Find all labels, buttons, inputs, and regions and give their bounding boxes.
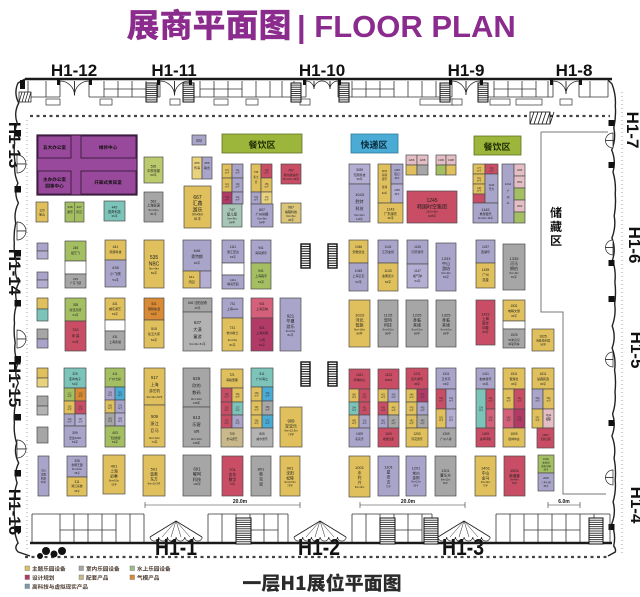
svg-text:36平: 36平 xyxy=(224,422,229,425)
svg-text:36平: 36平 xyxy=(543,485,549,488)
svg-text:36平: 36平 xyxy=(540,343,546,347)
svg-text:36平: 36平 xyxy=(477,190,482,193)
svg-text:宝山: 宝山 xyxy=(39,212,45,217)
svg-text:36平: 36平 xyxy=(108,407,113,410)
svg-text:517: 517 xyxy=(151,375,159,380)
svg-text:54平: 54平 xyxy=(112,278,118,282)
svg-text:509: 509 xyxy=(151,414,159,419)
svg-text:大漠: 大漠 xyxy=(193,326,202,333)
svg-text:36平: 36平 xyxy=(67,395,72,398)
svg-text:36平: 36平 xyxy=(265,409,270,412)
svg-text:常州: 常州 xyxy=(412,470,420,475)
svg-text:汇鑫: 汇鑫 xyxy=(192,200,202,207)
svg-text:811: 811 xyxy=(259,372,264,376)
svg-text:1439: 1439 xyxy=(482,268,490,272)
svg-text:1511: 1511 xyxy=(511,372,518,376)
svg-text:54平: 54平 xyxy=(229,221,235,225)
svg-text:36平: 36平 xyxy=(409,396,414,399)
svg-text:1208: 1208 xyxy=(420,158,426,162)
svg-text:81平: 81平 xyxy=(194,217,202,221)
svg-text:金马: 金马 xyxy=(482,475,490,480)
svg-text:805: 805 xyxy=(259,432,265,436)
svg-text:108平: 108平 xyxy=(193,441,201,445)
svg-text:M&W: M&W xyxy=(385,378,393,382)
svg-text:54平: 54平 xyxy=(415,279,421,283)
svg-text:么: 么 xyxy=(507,201,510,205)
svg-text:36平: 36平 xyxy=(443,382,449,386)
svg-text:上海velo: 上海velo xyxy=(227,306,239,311)
svg-text:柏林游乐: 柏林游乐 xyxy=(479,376,491,381)
svg-text:1109: 1109 xyxy=(385,432,392,436)
svg-text:上海互映: 上海互映 xyxy=(256,306,268,311)
svg-text:81平: 81平 xyxy=(194,261,200,265)
svg-text:9m×10m: 9m×10m xyxy=(72,467,82,471)
svg-text:73平: 73平 xyxy=(288,433,294,437)
svg-text:9m×12m: 9m×12m xyxy=(441,478,450,481)
svg-text:州: 州 xyxy=(507,195,510,199)
svg-text:32平: 32平 xyxy=(382,191,388,195)
svg-text:54平: 54平 xyxy=(385,280,391,284)
svg-text:1111: 1111 xyxy=(230,245,237,249)
svg-text:1611: 1611 xyxy=(540,372,547,376)
svg-text:乐园: 乐园 xyxy=(188,279,194,284)
svg-text:431: 431 xyxy=(112,335,118,339)
svg-text:36平: 36平 xyxy=(511,314,517,318)
svg-text:VR: VR xyxy=(194,429,200,434)
svg-text:广州海之: 广州海之 xyxy=(256,376,268,381)
svg-text:吉: 吉 xyxy=(387,480,391,485)
svg-text:小飞侠: 小飞侠 xyxy=(110,271,121,276)
svg-text:807: 807 xyxy=(259,208,265,212)
svg-text:941: 941 xyxy=(258,269,264,273)
svg-text:身临: 身临 xyxy=(442,317,450,323)
svg-text:445: 445 xyxy=(112,205,118,209)
svg-text:54平: 54平 xyxy=(258,280,264,284)
svg-text:36平: 36平 xyxy=(235,396,240,399)
svg-text:广州七彩: 广州七彩 xyxy=(109,376,121,381)
svg-text:36平: 36平 xyxy=(74,489,80,493)
svg-text:公司: 公司 xyxy=(259,337,265,342)
svg-text:长春日报: 长春日报 xyxy=(540,437,551,441)
svg-text:游乐: 游乐 xyxy=(67,209,73,214)
svg-text:1309: 1309 xyxy=(442,432,449,436)
svg-text:H1-8: H1-8 xyxy=(556,61,593,80)
svg-text:921: 921 xyxy=(259,326,265,330)
svg-text:36平: 36平 xyxy=(224,409,229,412)
svg-text:36平: 36平 xyxy=(479,409,484,412)
svg-text:上海森宇: 上海森宇 xyxy=(255,273,267,278)
svg-text:水: 水 xyxy=(358,470,362,475)
svg-text:米·高: 米·高 xyxy=(72,333,81,338)
svg-text:亚青电子: 亚青电子 xyxy=(69,376,81,381)
svg-text:45平: 45平 xyxy=(74,471,80,475)
svg-text:81平: 81平 xyxy=(259,343,265,347)
svg-text:9m×9m: 9m×9m xyxy=(510,478,518,481)
svg-text:假日: 假日 xyxy=(394,172,400,176)
svg-text:海润: 海润 xyxy=(382,173,388,177)
svg-text:组艺飞: 组艺飞 xyxy=(71,250,80,255)
svg-text:1401: 1401 xyxy=(481,465,491,470)
svg-text:1101: 1101 xyxy=(384,465,393,470)
svg-text:721: 721 xyxy=(229,373,235,377)
svg-text:325: 325 xyxy=(72,372,78,376)
svg-text:36平: 36平 xyxy=(394,177,400,180)
svg-text:高基: 高基 xyxy=(196,138,202,143)
svg-text:901: 901 xyxy=(287,465,294,470)
svg-text:三年心动: 三年心动 xyxy=(541,480,551,484)
svg-text:646 沈阳创奇: 646 沈阳创奇 xyxy=(188,300,208,305)
svg-text:1009: 1009 xyxy=(356,432,363,436)
svg-text:731: 731 xyxy=(230,302,236,306)
svg-text:73平: 73平 xyxy=(287,484,293,488)
svg-text:54平: 54平 xyxy=(73,313,79,317)
svg-text:54平: 54平 xyxy=(151,312,157,316)
svg-text:36平: 36平 xyxy=(265,422,270,425)
svg-text:36平: 36平 xyxy=(477,180,482,183)
svg-text:星: 星 xyxy=(387,470,391,475)
svg-text:36平: 36平 xyxy=(391,396,396,399)
svg-text:1554: 1554 xyxy=(517,181,523,184)
svg-text:36平: 36平 xyxy=(439,400,444,403)
svg-text:36平: 36平 xyxy=(352,396,357,399)
svg-text:1046: 1046 xyxy=(355,245,362,249)
svg-text:65平: 65平 xyxy=(413,484,419,487)
svg-text:兴: 兴 xyxy=(358,480,362,485)
svg-text:科技: 科技 xyxy=(356,205,364,211)
svg-text:54平: 54平 xyxy=(259,221,265,225)
svg-text:431: 431 xyxy=(112,302,118,306)
svg-text:335: 335 xyxy=(73,303,79,307)
svg-text:思: 思 xyxy=(259,483,263,487)
svg-text:333: 333 xyxy=(73,328,79,332)
svg-text:100平: 100平 xyxy=(193,482,201,486)
svg-text:6m×6m 36平: 6m×6m 36平 xyxy=(283,177,299,181)
svg-text:摩迅天府: 摩迅天府 xyxy=(69,307,81,312)
svg-text:36平: 36平 xyxy=(108,420,113,423)
svg-text:奥特朗: 奥特朗 xyxy=(191,254,203,259)
svg-text:36平: 36平 xyxy=(225,186,230,189)
svg-text:54平: 54平 xyxy=(112,440,118,444)
svg-text:冬之: 冬之 xyxy=(253,175,259,179)
svg-text:1437: 1437 xyxy=(482,245,489,249)
svg-text:| FLOOR PLAN: | FLOOR PLAN xyxy=(297,9,516,44)
svg-text:36平: 36平 xyxy=(409,409,414,412)
svg-text:拖气球: 拖气球 xyxy=(413,273,422,278)
svg-text:515: 515 xyxy=(151,327,157,331)
svg-text:625: 625 xyxy=(193,376,201,381)
svg-text:1206: 1206 xyxy=(409,158,415,162)
svg-text:36平: 36平 xyxy=(506,400,511,403)
svg-text:1514: 1514 xyxy=(546,413,552,417)
svg-text:81平: 81平 xyxy=(288,333,294,337)
svg-text:86平: 86平 xyxy=(357,332,363,336)
svg-text:36平: 36平 xyxy=(288,218,294,222)
svg-text:浙江宏达: 浙江宏达 xyxy=(227,249,239,254)
svg-text:36平: 36平 xyxy=(394,193,400,196)
svg-text:108平: 108平 xyxy=(428,214,436,218)
svg-text:中山: 中山 xyxy=(442,260,450,266)
svg-text:36平: 36平 xyxy=(67,421,72,424)
svg-text:上海: 上海 xyxy=(482,316,489,321)
svg-text:H1-7: H1-7 xyxy=(623,112,640,149)
svg-text:36平: 36平 xyxy=(225,172,230,175)
svg-text:金果武沙: 金果武沙 xyxy=(382,273,394,278)
svg-text:传海: 传海 xyxy=(194,165,200,170)
svg-text:36平: 36平 xyxy=(546,400,551,403)
svg-text:36平: 36平 xyxy=(387,216,393,220)
svg-text:36平: 36平 xyxy=(381,422,386,425)
svg-text:613: 613 xyxy=(193,415,201,420)
svg-text:广: 广 xyxy=(507,189,510,193)
svg-text:1245: 1245 xyxy=(426,198,437,204)
svg-text:535: 535 xyxy=(150,255,159,261)
svg-text:1123: 1123 xyxy=(385,373,392,377)
svg-text:36平: 36平 xyxy=(254,409,259,412)
svg-text:1443: 1443 xyxy=(489,183,495,187)
svg-text:往五大床: 往五大床 xyxy=(148,331,160,336)
svg-text:667: 667 xyxy=(193,195,202,201)
svg-text:胜特: 胜特 xyxy=(356,198,364,204)
svg-text:36平: 36平 xyxy=(108,394,113,397)
svg-text:南游科技: 南游科技 xyxy=(109,249,121,254)
svg-text:乐客: 乐客 xyxy=(192,421,201,428)
svg-text:54平: 54平 xyxy=(230,255,236,259)
svg-text:威尔游乐: 威尔游乐 xyxy=(256,437,267,441)
svg-text:72平: 72平 xyxy=(230,482,236,486)
svg-text:36平: 36平 xyxy=(264,172,269,175)
svg-text:童游: 童游 xyxy=(193,333,202,340)
svg-text:H1-11: H1-11 xyxy=(151,61,196,80)
svg-text:931: 931 xyxy=(259,302,265,306)
svg-text:36平: 36平 xyxy=(254,199,259,202)
svg-text:36平: 36平 xyxy=(477,170,482,173)
svg-text:数字: 数字 xyxy=(229,477,237,482)
svg-text:36平: 36平 xyxy=(409,422,414,425)
svg-text:风云: 风云 xyxy=(76,210,82,214)
svg-text:531: 531 xyxy=(151,302,157,306)
svg-text:1306: 1306 xyxy=(438,158,444,162)
svg-text:游艺机: 游艺机 xyxy=(149,388,160,393)
svg-text:1525: 1525 xyxy=(510,333,517,337)
svg-text:411: 411 xyxy=(112,372,117,376)
svg-text:H1-9: H1-9 xyxy=(448,61,485,80)
svg-text:钢铁侠漫: 钢铁侠漫 xyxy=(148,306,160,311)
svg-text:9m×9m: 9m×9m xyxy=(192,213,203,217)
svg-text:36平: 36平 xyxy=(235,172,240,175)
svg-text:广东飞颂: 广东飞颂 xyxy=(70,281,81,285)
svg-text:81平: 81平 xyxy=(230,343,236,347)
svg-text:1509: 1509 xyxy=(510,432,517,436)
svg-text:72平: 72平 xyxy=(386,485,392,488)
svg-text:1531: 1531 xyxy=(510,304,517,308)
svg-text:641: 641 xyxy=(189,275,194,279)
svg-text:1301: 1301 xyxy=(441,469,449,473)
svg-text:1151: 1151 xyxy=(382,169,388,173)
svg-text:36平: 36平 xyxy=(78,395,83,398)
svg-text:54平: 54平 xyxy=(151,338,157,342)
svg-text:36平: 36平 xyxy=(506,419,511,422)
svg-text:563: 563 xyxy=(151,199,157,203)
svg-text:H1-5: H1-5 xyxy=(627,332,640,369)
svg-text:73平: 73平 xyxy=(152,440,158,444)
svg-text:必奏: 必奏 xyxy=(110,474,118,479)
svg-text:435: 435 xyxy=(112,265,119,270)
svg-text:H1-4: H1-4 xyxy=(627,487,640,524)
svg-text:9m×9m: 9m×9m xyxy=(228,338,238,342)
svg-text:36平: 36平 xyxy=(517,419,522,422)
svg-text:9m×12m: 9m×12m xyxy=(354,213,364,217)
svg-text:36平: 36平 xyxy=(511,382,517,386)
svg-text:金东: 金东 xyxy=(229,472,237,477)
svg-text:9m×12m 81平: 9m×12m 81平 xyxy=(147,396,163,399)
svg-text:401: 401 xyxy=(111,464,118,469)
svg-text:悠特: 悠特 xyxy=(384,317,392,323)
svg-text:重游银乐: 重游银乐 xyxy=(479,211,491,216)
svg-text:36平: 36平 xyxy=(381,409,386,412)
svg-text:36平: 36平 xyxy=(449,419,454,422)
svg-text:81平: 81平 xyxy=(150,212,156,216)
svg-text:1221: 1221 xyxy=(413,372,420,376)
svg-text:54平: 54平 xyxy=(72,382,78,386)
svg-text:童年印象: 童年印象 xyxy=(480,437,491,441)
svg-text:36平: 36平 xyxy=(352,409,357,412)
svg-text:9m×12m: 9m×12m xyxy=(411,481,420,484)
svg-text:36平: 36平 xyxy=(254,395,259,398)
svg-text:108平: 108平 xyxy=(193,401,201,405)
svg-text:81平: 81平 xyxy=(443,275,449,279)
svg-text:9m×9m 36平: 9m×9m 36平 xyxy=(478,216,493,220)
svg-text:72平: 72平 xyxy=(483,485,489,488)
svg-text:9m×9m 81平: 9m×9m 81平 xyxy=(189,342,205,346)
svg-text:941: 941 xyxy=(258,246,264,250)
svg-text:535: 535 xyxy=(151,164,157,168)
svg-text:36平: 36平 xyxy=(391,409,396,412)
svg-text:36平: 36平 xyxy=(235,186,240,189)
svg-text:9m×10.5平: 9m×10.5平 xyxy=(148,481,161,485)
svg-text:54平: 54平 xyxy=(72,340,78,344)
svg-text:江苏金纬: 江苏金纬 xyxy=(382,249,394,254)
svg-text:36平: 36平 xyxy=(352,422,357,425)
svg-text:欣的: 欣的 xyxy=(192,382,200,389)
svg-text:701: 701 xyxy=(229,467,236,472)
svg-text:同乐游乐: 同乐游乐 xyxy=(411,249,423,254)
svg-text:1147: 1147 xyxy=(414,269,421,273)
svg-text:H1-12: H1-12 xyxy=(51,61,97,80)
svg-text:1308: 1308 xyxy=(448,158,454,162)
svg-text:36平: 36平 xyxy=(420,396,425,399)
svg-text:同花游乐: 同花游乐 xyxy=(411,437,422,441)
svg-text:置乐方: 置乐方 xyxy=(440,473,451,478)
svg-text:浙江: 浙江 xyxy=(150,420,158,427)
svg-text:恋: 恋 xyxy=(255,180,258,184)
svg-text:奥: 奥 xyxy=(259,472,263,477)
svg-text:1143: 1143 xyxy=(384,269,391,273)
svg-text:601: 601 xyxy=(193,466,201,471)
svg-text:1001: 1001 xyxy=(355,465,365,470)
svg-text:36平: 36平 xyxy=(489,170,494,173)
svg-text:奈: 奈 xyxy=(387,475,391,480)
svg-text:36平: 36平 xyxy=(381,396,386,399)
svg-text:凯旋: 凯旋 xyxy=(482,277,489,282)
svg-text:慢游社: 慢游社 xyxy=(509,376,518,381)
svg-text:H1-6: H1-6 xyxy=(625,227,640,264)
svg-text:637: 637 xyxy=(194,320,202,325)
svg-text:1311: 1311 xyxy=(443,372,450,376)
svg-text:巨马: 巨马 xyxy=(150,427,158,434)
svg-text:54平: 54平 xyxy=(72,440,78,444)
svg-text:36平: 36平 xyxy=(449,400,454,403)
svg-text:2002: 2002 xyxy=(543,476,549,480)
svg-text:上海米殊: 上海米殊 xyxy=(256,330,268,335)
svg-text:30平: 30平 xyxy=(546,417,552,421)
svg-text:数码: 数码 xyxy=(192,389,200,396)
svg-text:36平: 36平 xyxy=(225,199,230,202)
svg-text:36平: 36平 xyxy=(391,422,396,425)
svg-text:海格里斯: 海格里斯 xyxy=(226,377,238,382)
svg-text:36平: 36平 xyxy=(488,400,493,403)
svg-text:36平: 36平 xyxy=(41,480,47,484)
svg-text:709: 709 xyxy=(229,432,235,436)
svg-text:上海永旭: 上海永旭 xyxy=(109,339,121,344)
svg-text:松陵: 松陵 xyxy=(286,475,294,480)
svg-text:广州人康: 广州人康 xyxy=(440,437,451,441)
svg-text:36平: 36平 xyxy=(264,186,269,189)
svg-text:游乐车辆: 游乐车辆 xyxy=(541,464,551,468)
svg-text:电瞬文旅: 电瞬文旅 xyxy=(508,308,520,313)
svg-text:1411: 1411 xyxy=(482,372,489,376)
svg-text:1143: 1143 xyxy=(387,208,395,212)
svg-text:9m×12m: 9m×12m xyxy=(355,486,364,489)
svg-text:81平: 81平 xyxy=(511,275,517,279)
svg-text:1501: 1501 xyxy=(510,468,520,473)
svg-text:665: 665 xyxy=(194,161,199,165)
svg-text:86平: 86平 xyxy=(483,330,489,334)
svg-text:36平: 36平 xyxy=(535,419,540,422)
svg-text:110平: 110平 xyxy=(356,217,363,221)
svg-text:403: 403 xyxy=(112,431,118,435)
svg-text:河北: 河北 xyxy=(356,317,364,323)
svg-text:86平: 86平 xyxy=(443,332,449,336)
svg-text:上海: 上海 xyxy=(110,469,118,474)
svg-text:36平: 36平 xyxy=(362,422,367,425)
svg-text:1203: 1203 xyxy=(413,432,420,436)
svg-text:金米奇: 金米奇 xyxy=(542,461,550,465)
svg-text:921: 921 xyxy=(287,313,295,318)
svg-text:347: 347 xyxy=(76,205,81,209)
svg-text:蓝奥: 蓝奥 xyxy=(150,472,158,477)
svg-text:河马: 河马 xyxy=(510,260,518,266)
svg-text:45平: 45平 xyxy=(195,306,201,310)
svg-text:36平: 36平 xyxy=(420,409,425,412)
svg-text:36平: 36平 xyxy=(78,408,83,411)
svg-text:20.0m: 20.0m xyxy=(401,499,416,505)
svg-text:646: 646 xyxy=(194,248,201,253)
svg-text:54平: 54平 xyxy=(112,312,118,316)
svg-text:实实乐: 实实乐 xyxy=(355,437,364,441)
svg-text:3039: 3039 xyxy=(356,168,363,172)
svg-text:36平: 36平 xyxy=(111,214,117,218)
svg-text:利: 利 xyxy=(358,475,362,480)
svg-text:西湖乐: 西湖乐 xyxy=(481,249,490,254)
svg-text:中山: 中山 xyxy=(482,470,490,475)
svg-text:东方: 东方 xyxy=(150,477,158,482)
svg-text:童年: 童年 xyxy=(482,321,489,326)
svg-text:1141: 1141 xyxy=(385,245,392,249)
svg-text:36平: 36平 xyxy=(67,408,72,411)
svg-text:65平: 65平 xyxy=(443,482,449,485)
svg-text:1145: 1145 xyxy=(414,245,421,249)
svg-text:801: 801 xyxy=(258,467,265,472)
